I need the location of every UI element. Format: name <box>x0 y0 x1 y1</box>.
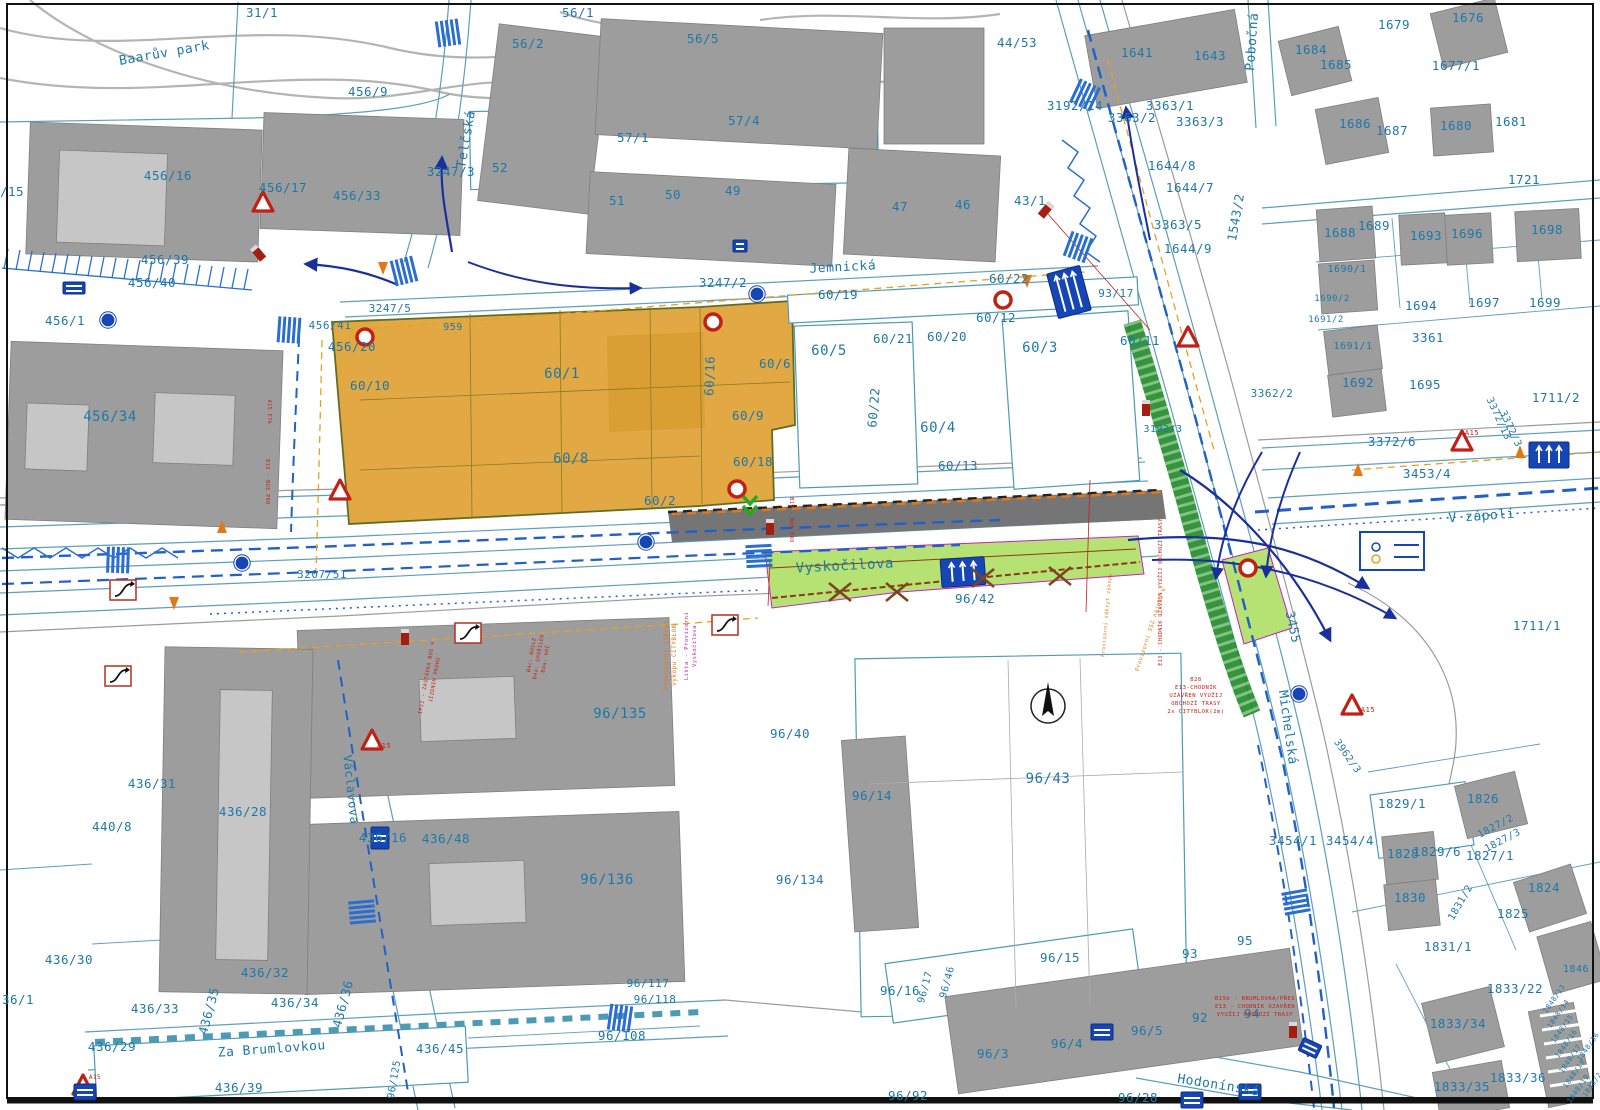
parcel-number-label: 456/17 <box>259 180 307 195</box>
rect <box>733 240 747 252</box>
parcel-number-label: 1695 <box>1409 377 1441 392</box>
signal-plan-box-icon <box>1360 532 1424 570</box>
street-name-label: Baarův park <box>118 38 211 69</box>
parcel-number-label: 1833/35 <box>1434 1079 1490 1094</box>
parcel-number-label: 96/15 <box>1040 950 1080 965</box>
building-footprint <box>1537 921 1600 994</box>
parcel-number-label: 1693 <box>1410 228 1442 243</box>
parcel-number-label: 436/16 <box>359 830 407 845</box>
detour-sign-icon <box>712 615 738 635</box>
parcel-number-label: 1688 <box>1324 225 1356 240</box>
line <box>298 318 300 344</box>
annotation-label: A15 <box>89 1074 101 1081</box>
parcel-number-label: 93 <box>1182 946 1198 961</box>
line <box>951 564 952 582</box>
line <box>441 21 445 47</box>
line <box>436 22 440 48</box>
parcel-number-label: 56/2 <box>512 36 544 51</box>
parcel-number-label: 60/20 <box>927 329 967 344</box>
parcel-number-label: 56/5 <box>687 31 719 46</box>
parcel-number-label: 1721 <box>1508 172 1540 187</box>
parcel-number-label: 3361 <box>1412 330 1444 345</box>
annotation-label: E13 - CHODNÍK UZAVŘEN <box>1215 1002 1295 1010</box>
line <box>613 1004 617 1030</box>
parcel-number-label: 3372/6 <box>1368 434 1416 449</box>
line <box>118 547 119 573</box>
parcel-number-label: 436/29 <box>88 1039 136 1054</box>
parcel-number-label: 1641 <box>1121 45 1153 60</box>
parcel-number-label: 92 <box>1192 1010 1208 1025</box>
parcel-number-label: 57/4 <box>728 113 760 128</box>
annotation-label: VYUŽIJ OBCHOZÍ TRASY <box>1217 1010 1293 1018</box>
parcel-number-label: 49 <box>725 183 741 198</box>
road-line <box>1368 744 1540 772</box>
building-footprint <box>843 148 1000 262</box>
blue-circle-sign-icon <box>638 534 654 550</box>
blue-rect-sign-icon <box>63 282 85 294</box>
road-line <box>1272 502 1600 524</box>
line <box>747 565 773 566</box>
parcel-number-label: 44/53 <box>997 35 1037 50</box>
parcel-number-label: 60/6 <box>759 356 791 371</box>
line <box>745 545 771 546</box>
building-footprint <box>429 860 526 925</box>
circle <box>1292 687 1306 701</box>
parcel-number-label: 3455 <box>1283 610 1304 645</box>
parcel-number-label: 1825 <box>1497 906 1529 921</box>
line <box>446 20 450 46</box>
parcel-number-label: 436/48 <box>422 831 470 846</box>
blue-rect-sign-icon <box>940 556 986 587</box>
blue-circle-sign-icon <box>234 555 250 571</box>
parcel-number-label: 1644/9 <box>1164 241 1212 256</box>
parcel-number-label: 96/16 <box>880 983 920 998</box>
parcel-number-label: 456/40 <box>128 275 176 290</box>
line <box>288 317 290 343</box>
parcel-number-label: 96/118 <box>634 993 677 1006</box>
parcel-number-label: 1694 <box>1405 298 1437 313</box>
parcel-number-label: 3207/51 <box>297 568 347 581</box>
parcel-number-label: 60/9 <box>732 408 764 423</box>
circle <box>750 287 764 301</box>
parcel-number-label: 1543/2 <box>1224 192 1247 242</box>
line <box>128 547 129 573</box>
warning-triangle-icon <box>1342 695 1362 714</box>
parcel-number-label: 3192/3 <box>1143 424 1182 435</box>
annotation-label: A15 <box>377 742 391 750</box>
parcel-number-label: 1690/1 <box>1327 264 1366 275</box>
parcel-number-label: 46 <box>955 197 971 212</box>
parcel-number-label: 1691/2 <box>1308 315 1344 325</box>
no-entry-sign-icon <box>1240 560 1256 576</box>
route-line <box>316 340 322 570</box>
construction-marker-icon <box>766 519 774 535</box>
annotation-label: 2x CITYBLOK(2m) <box>1167 709 1224 715</box>
line <box>746 555 772 556</box>
line <box>113 547 114 573</box>
annotation-label: A15 E7b <box>266 400 272 425</box>
street-name-label: Pobočná <box>1243 12 1262 71</box>
annotation-label: Provizorní zákryt výkopu <box>1099 573 1113 658</box>
annotation-label: B19 - BUS PRO <box>788 497 794 543</box>
parcel-number-label: 60/12 <box>976 310 1016 325</box>
parcel-number-label: 1831/2 <box>1446 883 1475 922</box>
parcel-number-label: 1697 <box>1468 295 1500 310</box>
parcel-number-label: 1698 <box>1531 222 1563 237</box>
road-line <box>1268 0 1276 126</box>
parcel-number-label: 436/39 <box>215 1080 263 1095</box>
detour-sign-icon <box>455 623 481 643</box>
parcel-number-label: 456/16 <box>144 168 192 183</box>
line <box>451 19 455 45</box>
parcel-number-label: 1833/36 <box>1490 1070 1546 1085</box>
rect <box>401 629 409 633</box>
parcel-number-label: 96/4 <box>1051 1036 1083 1051</box>
line <box>293 317 295 343</box>
line <box>608 1004 612 1030</box>
parcel-number-label: 436/31 <box>128 776 176 791</box>
parcel-number-label: 1833/34 <box>1430 1016 1486 1031</box>
parcel-number-label: 1829/1 <box>1378 796 1426 811</box>
detour-sign-icon <box>110 580 136 600</box>
rect <box>74 1084 96 1100</box>
parcel-number-label: 96/92 <box>888 1088 928 1103</box>
annotation-label: B19 - BUS PRO <box>264 459 270 505</box>
line <box>283 317 285 343</box>
annotation-label: A15 <box>1361 706 1375 714</box>
blue-rect-sign-icon <box>1091 1024 1113 1040</box>
parcel-number-label: 1711/2 <box>1532 390 1580 405</box>
parcel-number-label: 1833/22 <box>1487 981 1543 996</box>
circle <box>995 292 1011 308</box>
parcel-number-label: 60/13 <box>938 458 978 473</box>
highlighted-building-area <box>332 301 795 524</box>
line <box>278 316 280 342</box>
route-line <box>1258 508 1600 530</box>
parcel-number-label: 436/45 <box>416 1041 464 1056</box>
parcel-number-label: 52 <box>492 160 508 175</box>
building-footprint <box>25 403 89 471</box>
road-line <box>0 864 92 870</box>
blue-circle-sign-icon <box>100 312 116 328</box>
blue-circle-sign-icon <box>749 286 765 302</box>
parcel-number-label: 60/18 <box>733 454 773 469</box>
parcel-number-label: 3192/14 <box>1047 98 1103 113</box>
park-path <box>760 14 1000 20</box>
parcel-number-label: 47 <box>892 199 908 214</box>
annotation-label: Vyskočilova <box>691 625 698 667</box>
circle <box>729 481 745 497</box>
road-line <box>1262 180 1600 208</box>
annotation-label: OBCHOZÍ TRASY <box>1171 699 1221 707</box>
parcel-number-label: 96/40 <box>770 726 810 741</box>
annotation-label: B28 <box>1190 677 1201 683</box>
parcel-number-label: 436/30 <box>45 952 93 967</box>
parcel-number-label: 60/21 <box>873 331 913 346</box>
rect <box>1091 1024 1113 1040</box>
parcel-number-label: 43/1 <box>1014 193 1046 208</box>
line <box>962 563 963 581</box>
construction-marker-icon <box>1289 1022 1297 1038</box>
annotation-label: B15b - BRUMLOVKA/PŘES <box>1215 994 1295 1002</box>
rect <box>1360 532 1424 570</box>
parcel-number-label: 959 <box>443 322 463 333</box>
parcel-number-label: 60/22 <box>989 271 1029 286</box>
line <box>618 1005 622 1031</box>
parcel-number-label: 1692 <box>1342 375 1374 390</box>
line <box>746 550 772 551</box>
highlighted-building-area <box>607 332 705 432</box>
construction-marker-icon <box>401 629 409 645</box>
parcel-number-label: 1827/1 <box>1466 848 1514 863</box>
parcel-number-label: 436/32 <box>241 965 289 980</box>
parcel-number-label: 436/35 <box>195 986 222 1036</box>
parcel-number-label: 93/17 <box>1098 287 1134 300</box>
rect <box>63 282 85 294</box>
parcel-number-label: 60/3 <box>1022 340 1058 356</box>
blue-rect-sign-icon <box>1047 265 1092 318</box>
road-line <box>1258 422 1600 440</box>
parcel-number-label: 3247/5 <box>369 302 412 315</box>
parcel-number-label: 1689 <box>1358 218 1390 233</box>
parcel-number-label: 1685 <box>1320 57 1352 72</box>
parcel-number-label: 60/5 <box>811 343 847 359</box>
map-viewport: Baarův parkTelčskáJemnickáPobočnáVyskoči… <box>0 0 1600 1110</box>
road-line <box>1268 478 1600 498</box>
annotation-label: Lišta - Provizorní <box>683 612 690 681</box>
parcel-number-label: 96/117 <box>627 977 670 990</box>
parcel-number-label: 57/1 <box>617 130 649 145</box>
traffic-flow-arrow <box>1126 108 1150 240</box>
no-entry-sign-icon <box>729 481 745 497</box>
parcel-number-label: 60/16 <box>701 356 717 397</box>
orange-arrow-icon <box>378 262 388 275</box>
parcel-number-label: 1684 <box>1295 42 1327 57</box>
parcel-number-label: 1677/1 <box>1432 58 1480 73</box>
parcel-number-label: 456/33 <box>333 188 381 203</box>
traffic-flow-arrow <box>468 262 640 288</box>
parcel-number-label: 50 <box>665 187 681 202</box>
parcel-number-label: 456/41 <box>309 319 352 332</box>
parcel-number-label: 1643 <box>1194 48 1226 63</box>
parcel-number-label: 456/9 <box>348 84 388 99</box>
parcel-number-label: 1711/1 <box>1513 618 1561 633</box>
parcel-number-label: 1691/1 <box>1333 341 1372 352</box>
parcel-number-label: 96/134 <box>776 872 824 887</box>
parcel-number-label: 60/19 <box>818 287 858 302</box>
parcel-number-label: 60/11 <box>1120 333 1160 348</box>
parcel-number-label: 3363/3 <box>1176 114 1224 129</box>
parcel-number-label: 456/1 <box>45 313 85 328</box>
construction-marker-icon <box>1142 400 1150 416</box>
circle <box>1240 560 1256 576</box>
parcel-number-label: 1680 <box>1440 118 1472 133</box>
circle <box>639 535 653 549</box>
parcel-number-label: 3454/4 <box>1326 833 1374 848</box>
blue-rect-sign-icon <box>1529 442 1569 468</box>
rect <box>1142 400 1150 404</box>
building-footprint <box>841 736 918 932</box>
annotation-label: E13-CHODNÍK <box>1175 683 1217 691</box>
route-line <box>1255 488 1600 512</box>
annotation-label: A15 <box>1465 429 1479 437</box>
detour-sign-icon <box>105 666 131 686</box>
parcel-number-label: 3363/5 <box>1154 217 1202 232</box>
building-footprint <box>1513 864 1586 932</box>
crosswalk-icon <box>1064 231 1092 262</box>
parcel-number-label: 31/1 <box>246 5 278 20</box>
crosswalk-icon <box>278 316 300 343</box>
parcel-number-label: 1846 <box>1563 964 1589 975</box>
blue-rect-sign-icon <box>733 240 747 252</box>
parcel-number-label: 1679 <box>1378 17 1410 32</box>
parcel-number-label: 96/5 <box>1131 1023 1163 1038</box>
parcel-number-label: 1644/8 <box>1148 158 1196 173</box>
line <box>1284 905 1310 910</box>
rect <box>1181 1092 1203 1108</box>
parcel-number-label: 60/2 <box>644 493 676 508</box>
parcel-number-label: 1687 <box>1376 123 1408 138</box>
parcel-number-label: 1831/1 <box>1424 939 1472 954</box>
rect <box>1289 1022 1297 1026</box>
circle <box>705 314 721 330</box>
route-line <box>291 320 300 532</box>
parcel-number-label: 1696 <box>1451 226 1483 241</box>
parcel-number-label: 1681 <box>1495 114 1527 129</box>
parcel-number-label: 1644/7 <box>1166 180 1214 195</box>
parcel-number-label: 3454/1 <box>1269 833 1317 848</box>
blue-circle-sign-icon <box>1291 686 1307 702</box>
annotation-label: UZAVŘEN VYUŽIJ <box>1169 691 1222 699</box>
parcel-number-label: 60/4 <box>920 420 956 436</box>
street-name-label: V zápolí <box>1448 507 1516 527</box>
parcel-number-label: 1824 <box>1528 880 1560 895</box>
building-footprint <box>56 150 167 246</box>
line <box>456 19 460 45</box>
parcel-number-label: 51 <box>609 193 625 208</box>
line <box>123 547 124 573</box>
parcel-number-label: 60/1 <box>544 366 580 382</box>
parcel-number-label: 1690/2 <box>1314 294 1350 304</box>
annotation-label: výkopu CITYBLOK <box>671 624 678 686</box>
parcel-number-label: 60/8 <box>553 451 589 467</box>
parcel-number-label: /15 <box>0 184 24 199</box>
parcel-number-label: 36/1 <box>2 992 34 1007</box>
parcel-number-label: 96/136 <box>580 872 634 888</box>
parcel-number-label: 96/28 <box>1118 1090 1158 1105</box>
path <box>1342 695 1362 714</box>
parcel-number-label: 3453/4 <box>1403 466 1451 481</box>
parcel-number-label: 96/3 <box>977 1046 1009 1061</box>
parcel-number-label: 456/20 <box>328 339 376 354</box>
line <box>108 547 109 573</box>
parcel-number-label: 96/108 <box>598 1028 646 1043</box>
building-footprint <box>216 690 273 961</box>
parcel-number-label: 456/39 <box>141 252 189 267</box>
parcel-number-label: 95 <box>1237 933 1253 948</box>
parcel-number-label: 96/14 <box>852 788 892 803</box>
crosswalk-icon <box>436 19 459 48</box>
parcel-number-label: 1829/6 <box>1413 844 1461 859</box>
parcel-number-label: 3247/3 <box>427 164 475 179</box>
line <box>1281 890 1307 895</box>
circle <box>235 556 249 570</box>
annotation-label: Provizorní zákryt <box>663 620 670 690</box>
no-entry-sign-icon <box>995 292 1011 308</box>
rect <box>766 519 774 523</box>
building-footprint <box>586 172 836 267</box>
building-footprint <box>884 28 984 144</box>
blue-rect-sign-icon <box>74 1084 96 1100</box>
line <box>746 560 772 561</box>
parcel-number-label: 456/34 <box>83 409 137 425</box>
parcel-number-label: 436/28 <box>219 804 267 819</box>
blue-rect-sign-icon <box>1181 1092 1203 1108</box>
parcel-number-label: 1830 <box>1394 890 1426 905</box>
road-line <box>1392 218 1400 308</box>
parcel-number-label: 3363/2 <box>1108 110 1156 125</box>
parcel-number-label: 56/1 <box>562 5 594 20</box>
parcel-number-label: 3962/3 <box>1331 737 1362 775</box>
parcel-number-label: 1826 <box>1467 791 1499 806</box>
parcel-number-label: 1686 <box>1339 116 1371 131</box>
parcel-number-label: 1699 <box>1529 295 1561 310</box>
building-footprint <box>153 393 235 466</box>
parcel-number-label: 436/33 <box>131 1001 179 1016</box>
building-footprint <box>1384 879 1441 930</box>
parcel-number-label: 1676 <box>1452 10 1484 25</box>
road-line <box>468 1026 700 1038</box>
parcel-number-label: 436/34 <box>271 995 319 1010</box>
parcel-number-label: 3362/2 <box>1251 387 1294 400</box>
parcel-number-label: 96/43 <box>1026 771 1071 787</box>
parcel-number-label: 96/42 <box>955 591 995 606</box>
map-canvas: Baarův parkTelčskáJemnickáPobočnáVyskoči… <box>0 0 1600 1110</box>
parcel-number-label: 3247/2 <box>699 275 747 290</box>
circle <box>101 313 115 327</box>
street-name-label: Jemnická <box>809 258 876 276</box>
parcel-number-label: 60/10 <box>350 378 390 393</box>
path <box>378 262 388 275</box>
road-line <box>232 2 238 118</box>
no-entry-sign-icon <box>705 314 721 330</box>
line <box>1285 910 1311 915</box>
parcel-number-label: 440/8 <box>92 819 132 834</box>
parcel-number-label: 96/135 <box>593 706 647 722</box>
